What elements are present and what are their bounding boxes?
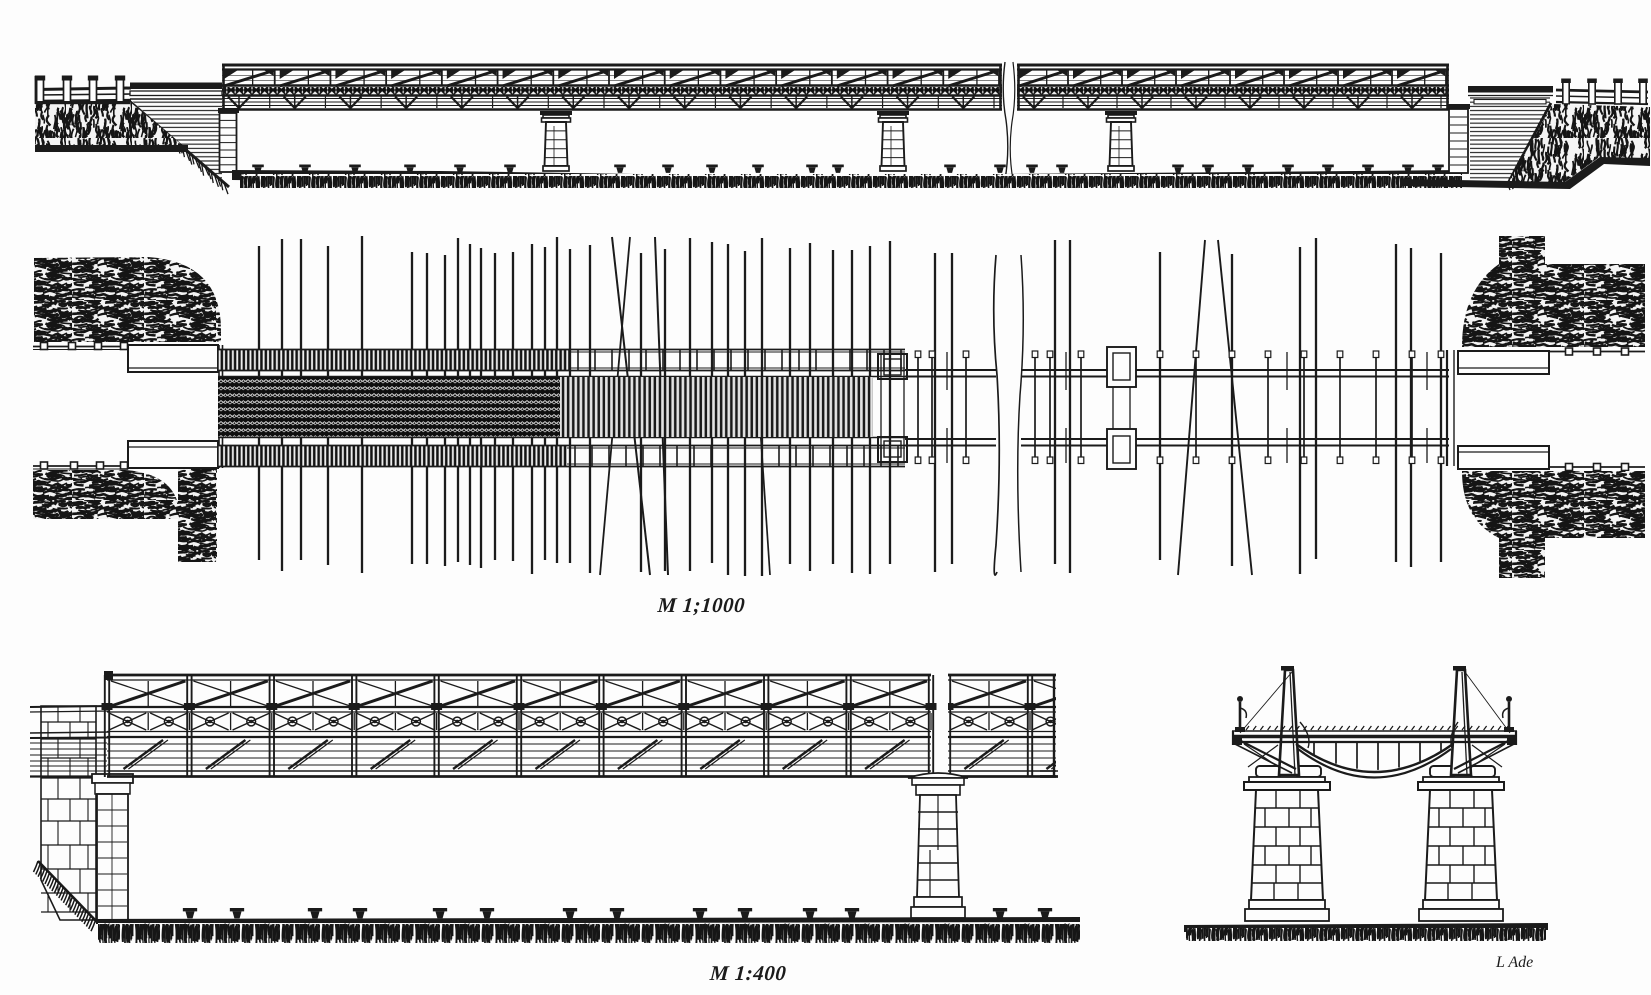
svg-text:M 1:400: M 1:400 bbox=[708, 961, 787, 985]
svg-text:M 1;1000: M 1;1000 bbox=[656, 593, 746, 617]
svg-text:L Ade: L Ade bbox=[1495, 954, 1533, 971]
